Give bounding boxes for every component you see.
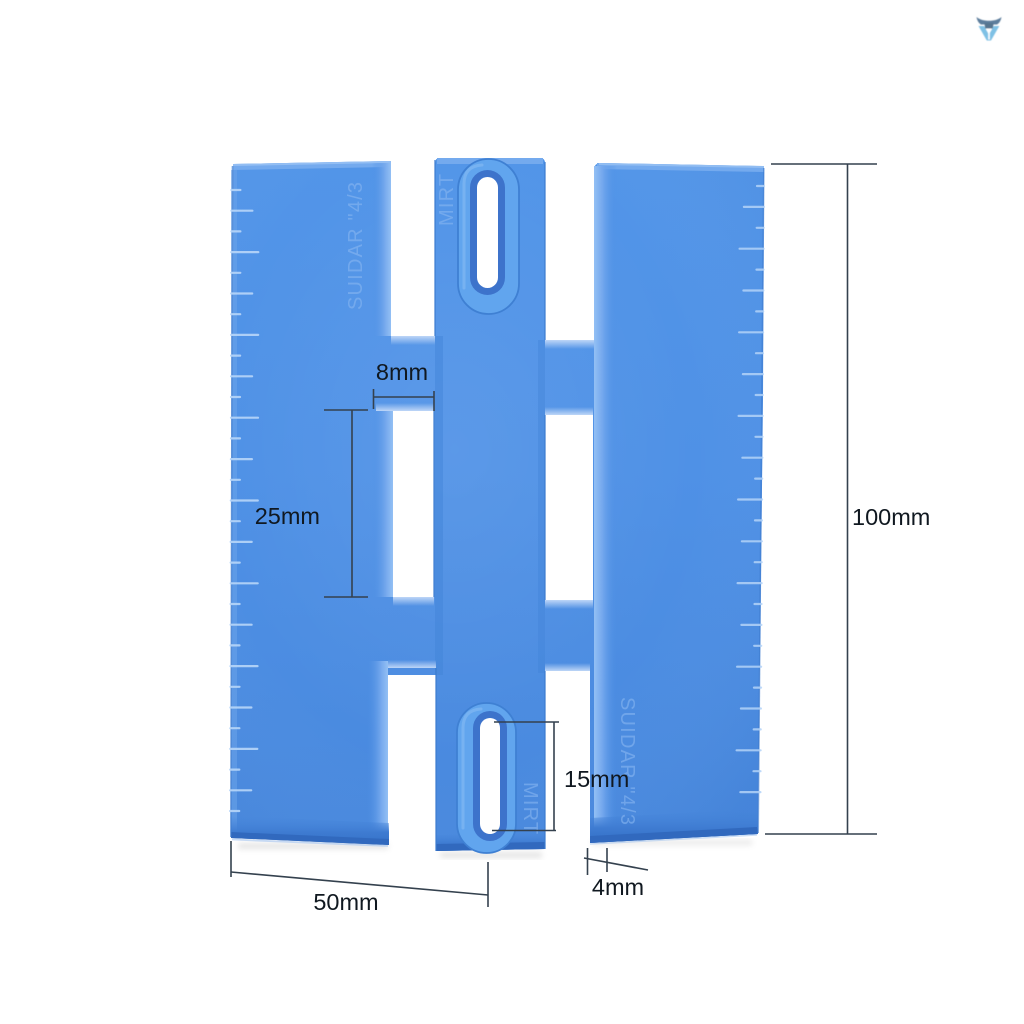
svg-text:8mm: 8mm [376,359,428,385]
svg-text:25mm: 25mm [255,503,320,529]
svg-text:100mm: 100mm [852,504,930,530]
svg-text:MIRT: MIRT [436,173,458,226]
svg-text:SUIDAR "4/3: SUIDAR "4/3 [616,697,638,826]
svg-text:15mm: 15mm [564,766,629,792]
svg-text:SUIDAR "4/3: SUIDAR "4/3 [345,181,367,310]
svg-text:MIRT: MIRT [519,782,541,835]
svg-text:50mm: 50mm [313,889,378,915]
svg-text:4mm: 4mm [592,874,644,900]
